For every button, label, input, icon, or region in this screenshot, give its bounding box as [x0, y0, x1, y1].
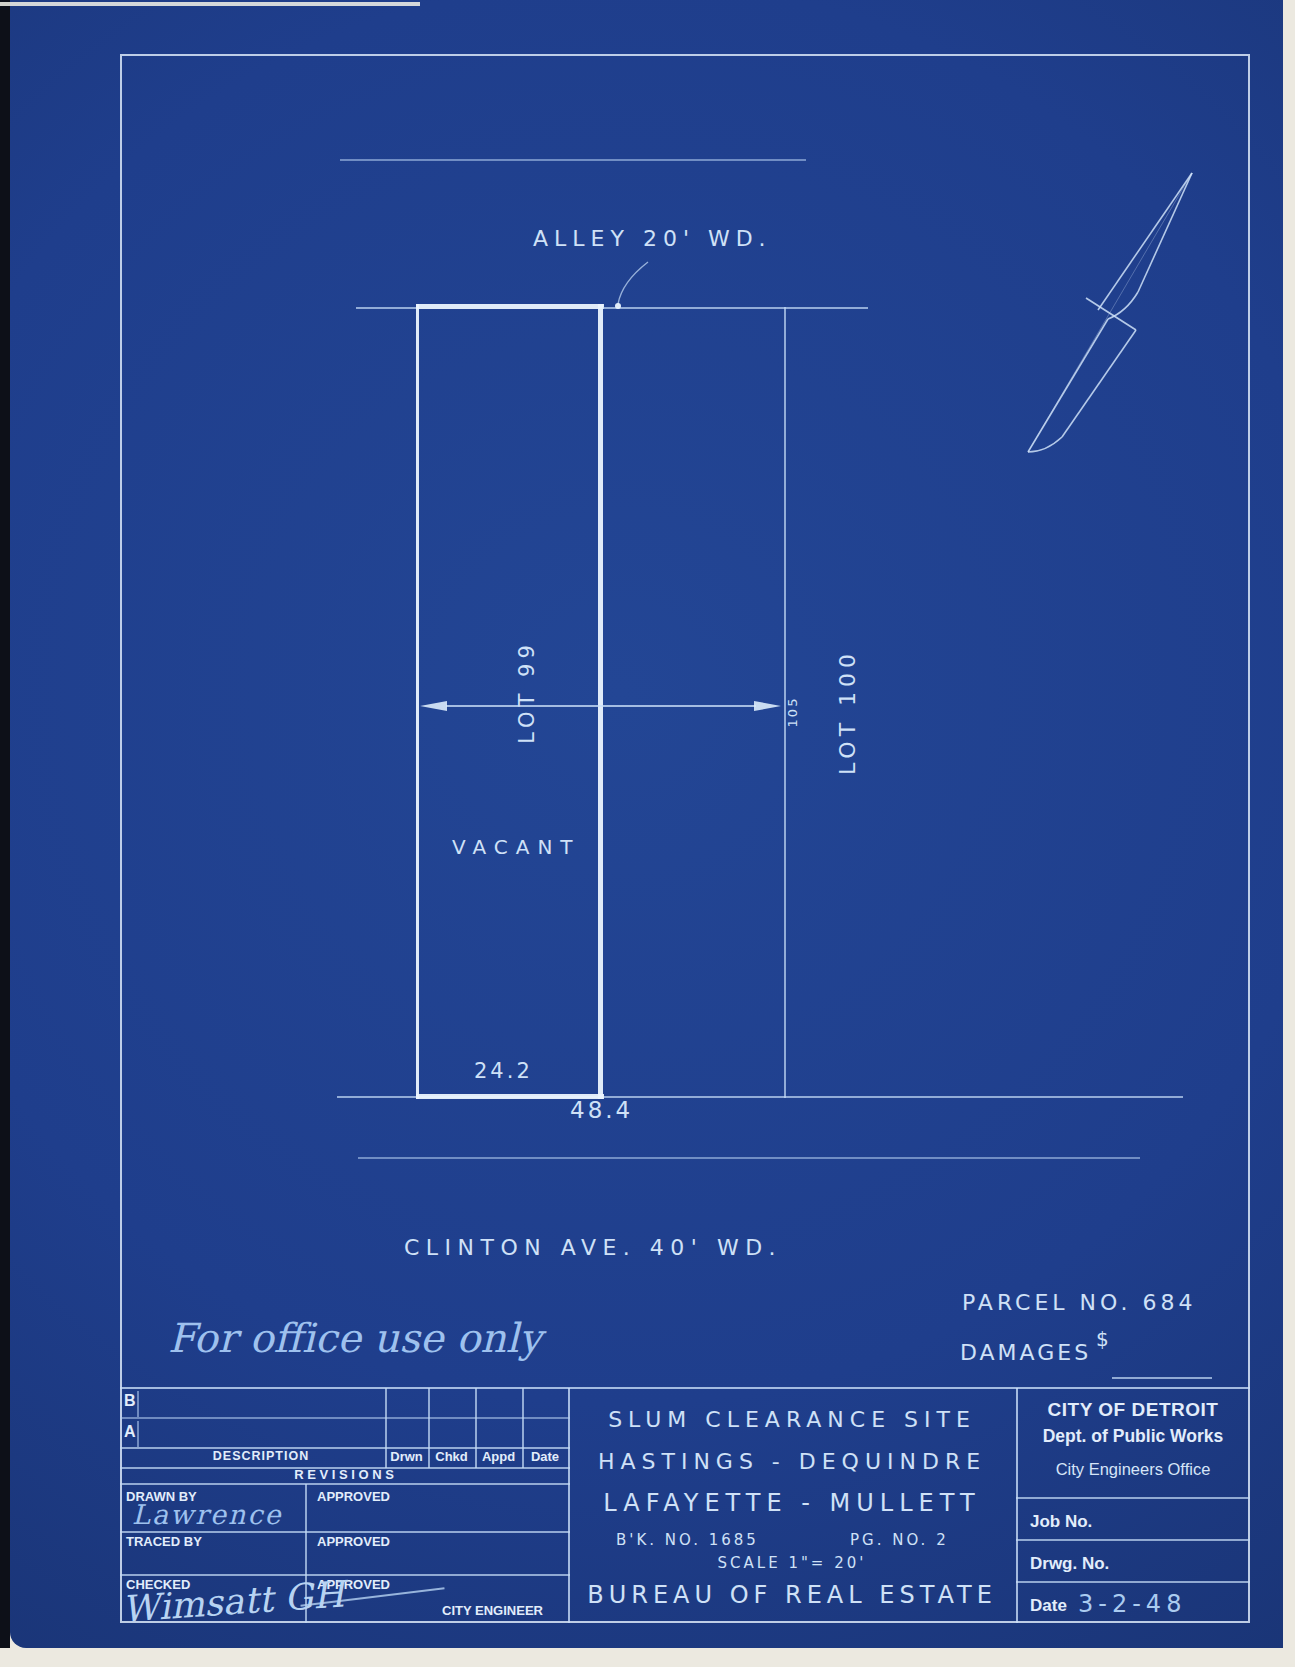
drawn-row-line — [120, 1531, 570, 1533]
description-header: DESCRIPTION — [137, 1450, 385, 1464]
street-second-line — [358, 1157, 1140, 1159]
damages-currency: $ — [1096, 1328, 1109, 1350]
approved-label-2: APPROVED — [317, 1535, 390, 1549]
parcel-west-line — [416, 304, 419, 1099]
agency-line-1 — [1016, 1497, 1250, 1499]
project-title-line3: LAFAYETTE - MULLETT — [568, 1490, 1016, 1516]
revision-row-a: A — [124, 1423, 136, 1441]
street-label: CLINTON AVE. 40' WD. — [404, 1236, 782, 1260]
row-b-tick — [137, 1391, 139, 1417]
damages-label: DAMAGES — [960, 1341, 1091, 1365]
width-dimension-inner: 24.2 — [474, 1060, 533, 1083]
col-header-appd: Appd — [475, 1450, 522, 1464]
office-use-note: For office use only — [168, 1316, 541, 1360]
parcel-north-line — [416, 304, 604, 309]
date-value: 3-2-48 — [1078, 1591, 1186, 1617]
drawn-by-signature: Lawrence — [132, 1500, 283, 1530]
agency-line-3 — [1016, 1581, 1250, 1583]
revision-row-b-line — [120, 1417, 570, 1419]
north-arrow-icon — [950, 140, 1210, 470]
scan-edge-top — [0, 2, 420, 6]
titleblock-top-line — [120, 1387, 1250, 1389]
job-no-label: Job No. — [1030, 1513, 1092, 1532]
depth-dimension-value: 105 — [786, 697, 800, 728]
alley-leader-line — [598, 256, 658, 316]
agency-city: CITY OF DETROIT — [1016, 1400, 1250, 1421]
dimension-arrow-right-icon — [754, 701, 781, 711]
dimension-arrow-left-icon — [420, 701, 447, 711]
alley-north-line — [340, 159, 806, 161]
width-dimension-outer: 48.4 — [570, 1098, 633, 1123]
traced-row-line — [120, 1574, 570, 1576]
row-a-tick — [137, 1421, 139, 1447]
scan-edge-left — [0, 0, 10, 1648]
parcel-east-line — [598, 304, 603, 1099]
titleblock-divider-right — [1016, 1388, 1018, 1623]
col-header-date: Date — [522, 1450, 568, 1464]
damages-blank-line — [1112, 1377, 1212, 1379]
page-number: PG. NO. 2 — [850, 1532, 949, 1549]
col-header-chkd: Chkd — [428, 1450, 475, 1464]
revision-row-b: B — [124, 1392, 136, 1410]
date-label: Date — [1030, 1597, 1067, 1616]
agency-line-2 — [1016, 1539, 1250, 1541]
agency-office: City Engineers Office — [1016, 1460, 1250, 1478]
depth-dimension-line — [446, 705, 756, 707]
drwg-no-label: Drwg. No. — [1030, 1555, 1109, 1574]
parcel-number: PARCEL NO. 684 — [962, 1291, 1196, 1315]
traced-by-label: TRACED BY — [126, 1535, 202, 1549]
scale-note: SCALE 1"= 20' — [568, 1555, 1016, 1572]
agency-dept: Dept. of Public Works — [1016, 1427, 1250, 1446]
col-header-drwn: Drwn — [385, 1450, 428, 1464]
alley-label: ALLEY 20' WD. — [533, 227, 772, 251]
city-engineer-label: CITY ENGINEER — [420, 1604, 565, 1618]
vacant-label: VACANT — [452, 836, 581, 858]
lot-top-line-west — [356, 307, 418, 309]
approved-label-1: APPROVED — [317, 1490, 390, 1504]
revisions-bottom-line — [120, 1483, 570, 1485]
book-number: B'K. NO. 1685 — [616, 1532, 759, 1549]
project-title-line1: SLUM CLEARANCE SITE — [568, 1408, 1016, 1432]
bureau-label: BUREAU OF REAL ESTATE — [568, 1582, 1016, 1608]
project-title-line2: HASTINGS - DEQUINDRE — [568, 1450, 1016, 1474]
revisions-title: R E V I S I O N S — [120, 1468, 568, 1482]
blueprint-scan: ALLEY 20' WD. LOT 99 105 LOT 100 VACANT … — [0, 0, 1295, 1667]
lot100-label: LOT 100 — [836, 649, 860, 775]
lot99-label: LOT 99 — [516, 640, 539, 744]
